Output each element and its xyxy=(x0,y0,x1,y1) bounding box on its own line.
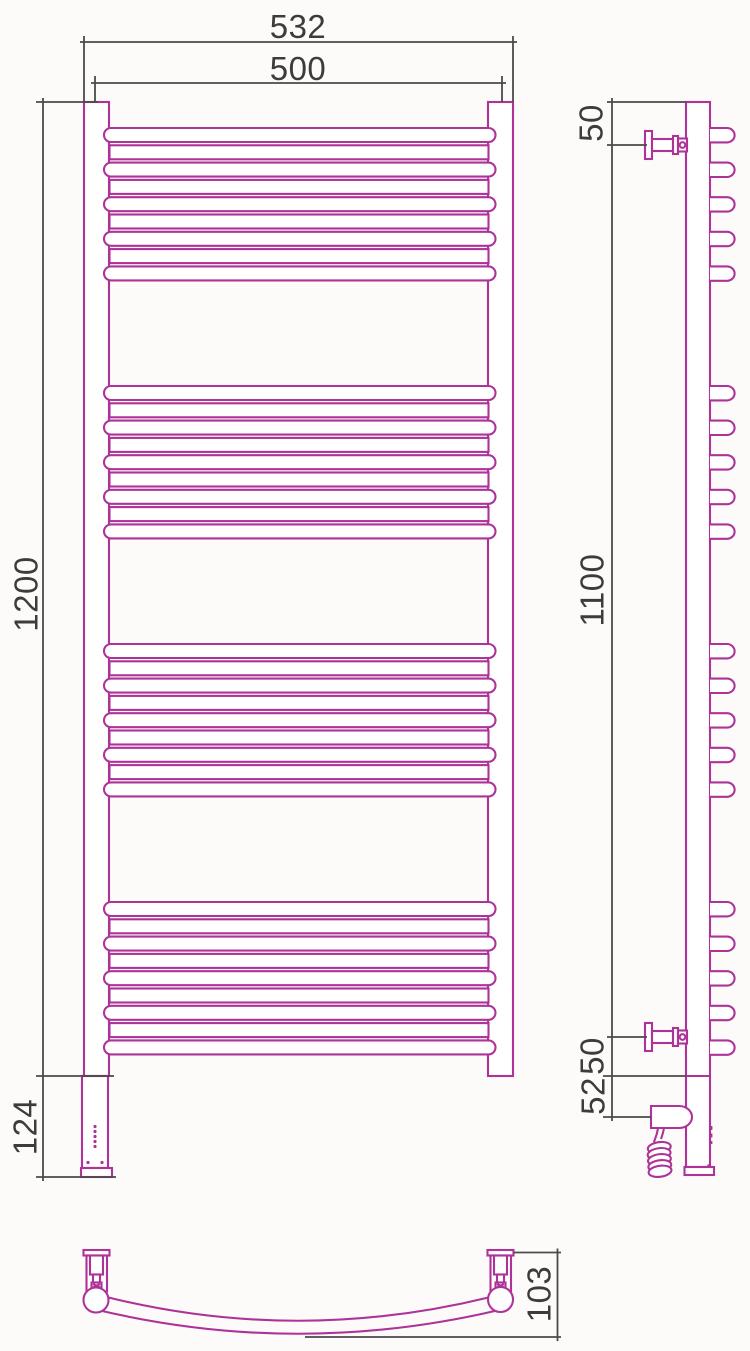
curved-rung-side-tab xyxy=(710,232,735,246)
bottom-dimensions: 103 xyxy=(305,1249,561,1342)
straight-rung xyxy=(110,919,489,933)
bottom-view xyxy=(84,1250,514,1334)
curved-rung xyxy=(104,782,496,796)
straight-rung xyxy=(110,765,489,779)
left-collector-section xyxy=(84,1288,109,1313)
towel-rail-technical-drawing: 532 500 1200 124 50 1100 50 52 103 xyxy=(0,0,750,1351)
curved-rung xyxy=(104,937,496,951)
curved-rung-side-tab xyxy=(710,163,735,177)
dim-label-rail-width: 500 xyxy=(270,50,327,87)
dim-label-bow-depth: 103 xyxy=(521,1266,558,1323)
curved-rung xyxy=(104,748,496,762)
curved-rung-side-tab xyxy=(710,266,735,280)
curved-rung-side-tab xyxy=(710,713,735,727)
dim-label-bottom-bracket-offset: 50 xyxy=(574,1037,611,1075)
top-wall-bracket xyxy=(645,131,687,159)
side-view xyxy=(645,102,735,1178)
dim-label-heater-unit-offset: 52 xyxy=(575,1077,612,1115)
curved-rung xyxy=(104,713,496,727)
straight-rung xyxy=(110,989,489,1003)
side-pipe-foot xyxy=(685,1167,715,1175)
curved-rung xyxy=(104,902,496,916)
side-dimensions: 50 1100 50 52 xyxy=(573,98,687,1121)
front-view xyxy=(81,102,513,1177)
dim-label-heater-section-height: 124 xyxy=(7,1099,44,1156)
curved-rung-plan xyxy=(100,1298,497,1334)
curved-rung xyxy=(104,490,496,504)
curved-rung-side-tab xyxy=(710,524,735,538)
curved-rung xyxy=(104,1040,496,1054)
heating-element-housing xyxy=(82,1076,108,1168)
drawing-canvas: 532 500 1200 124 50 1100 50 52 103 xyxy=(0,0,750,1351)
curved-rung xyxy=(104,1006,496,1020)
left-collector xyxy=(84,102,109,1076)
curved-rung-side-tab xyxy=(710,197,735,211)
right-collector-section xyxy=(488,1287,513,1312)
side-collector-pipe xyxy=(686,102,710,1167)
curved-rung-side-tab xyxy=(710,1006,735,1020)
bottom-view-left-bracket xyxy=(84,1250,110,1292)
straight-rung xyxy=(110,403,489,417)
dim-label-overall-height: 1200 xyxy=(8,556,45,631)
dim-label-bracket-span: 1100 xyxy=(574,554,611,627)
housing-foot xyxy=(81,1168,112,1177)
curved-rung xyxy=(104,421,496,435)
bottom-wall-bracket xyxy=(645,1023,687,1051)
curved-rung-side-tab xyxy=(710,937,735,951)
straight-rung xyxy=(110,1023,489,1037)
dim-label-overall-width: 532 xyxy=(270,8,327,45)
curved-rung xyxy=(104,163,496,177)
side-rung-tabs xyxy=(710,128,735,1055)
curved-rung-side-tab xyxy=(710,128,735,142)
straight-rung xyxy=(110,473,489,487)
curved-rung-side-tab xyxy=(710,644,735,658)
curved-rung xyxy=(104,266,496,280)
straight-rung xyxy=(110,696,489,710)
straight-rung xyxy=(110,180,489,194)
curved-rung xyxy=(104,197,496,211)
curved-rung-side-tab xyxy=(710,421,735,435)
straight-rung xyxy=(110,954,489,968)
straight-rung xyxy=(110,145,489,159)
straight-rung xyxy=(110,507,489,521)
curved-rung xyxy=(104,386,496,400)
straight-rung xyxy=(110,215,489,229)
curved-rung-side-tab xyxy=(710,679,735,693)
curved-rung-side-tab xyxy=(710,782,735,796)
curved-rung xyxy=(104,232,496,246)
curved-rung xyxy=(104,971,496,985)
dim-line-side xyxy=(603,98,686,1121)
bottom-view-right-bracket xyxy=(488,1250,514,1292)
curved-rung-side-tab xyxy=(710,455,735,469)
curved-rung xyxy=(104,128,496,142)
power-cable-coil xyxy=(645,1141,675,1179)
straight-rung xyxy=(110,731,489,745)
curved-rung-side-tab xyxy=(710,386,735,400)
dim-label-top-bracket-offset: 50 xyxy=(573,104,610,142)
right-collector xyxy=(488,102,513,1076)
curved-rung xyxy=(104,524,496,538)
straight-rung xyxy=(110,661,489,675)
straight-rung xyxy=(110,438,489,452)
curved-rung-side-tab xyxy=(710,1040,735,1054)
front-rungs xyxy=(104,128,496,1054)
curved-rung-side-tab xyxy=(710,902,735,916)
curved-rung xyxy=(104,455,496,469)
curved-rung-side-tab xyxy=(710,490,735,504)
curved-rung xyxy=(104,679,496,693)
curved-rung xyxy=(104,644,496,658)
curved-rung-side-tab xyxy=(710,971,735,985)
curved-rung-side-tab xyxy=(710,748,735,762)
straight-rung xyxy=(110,249,489,263)
power-cable xyxy=(654,1128,664,1142)
